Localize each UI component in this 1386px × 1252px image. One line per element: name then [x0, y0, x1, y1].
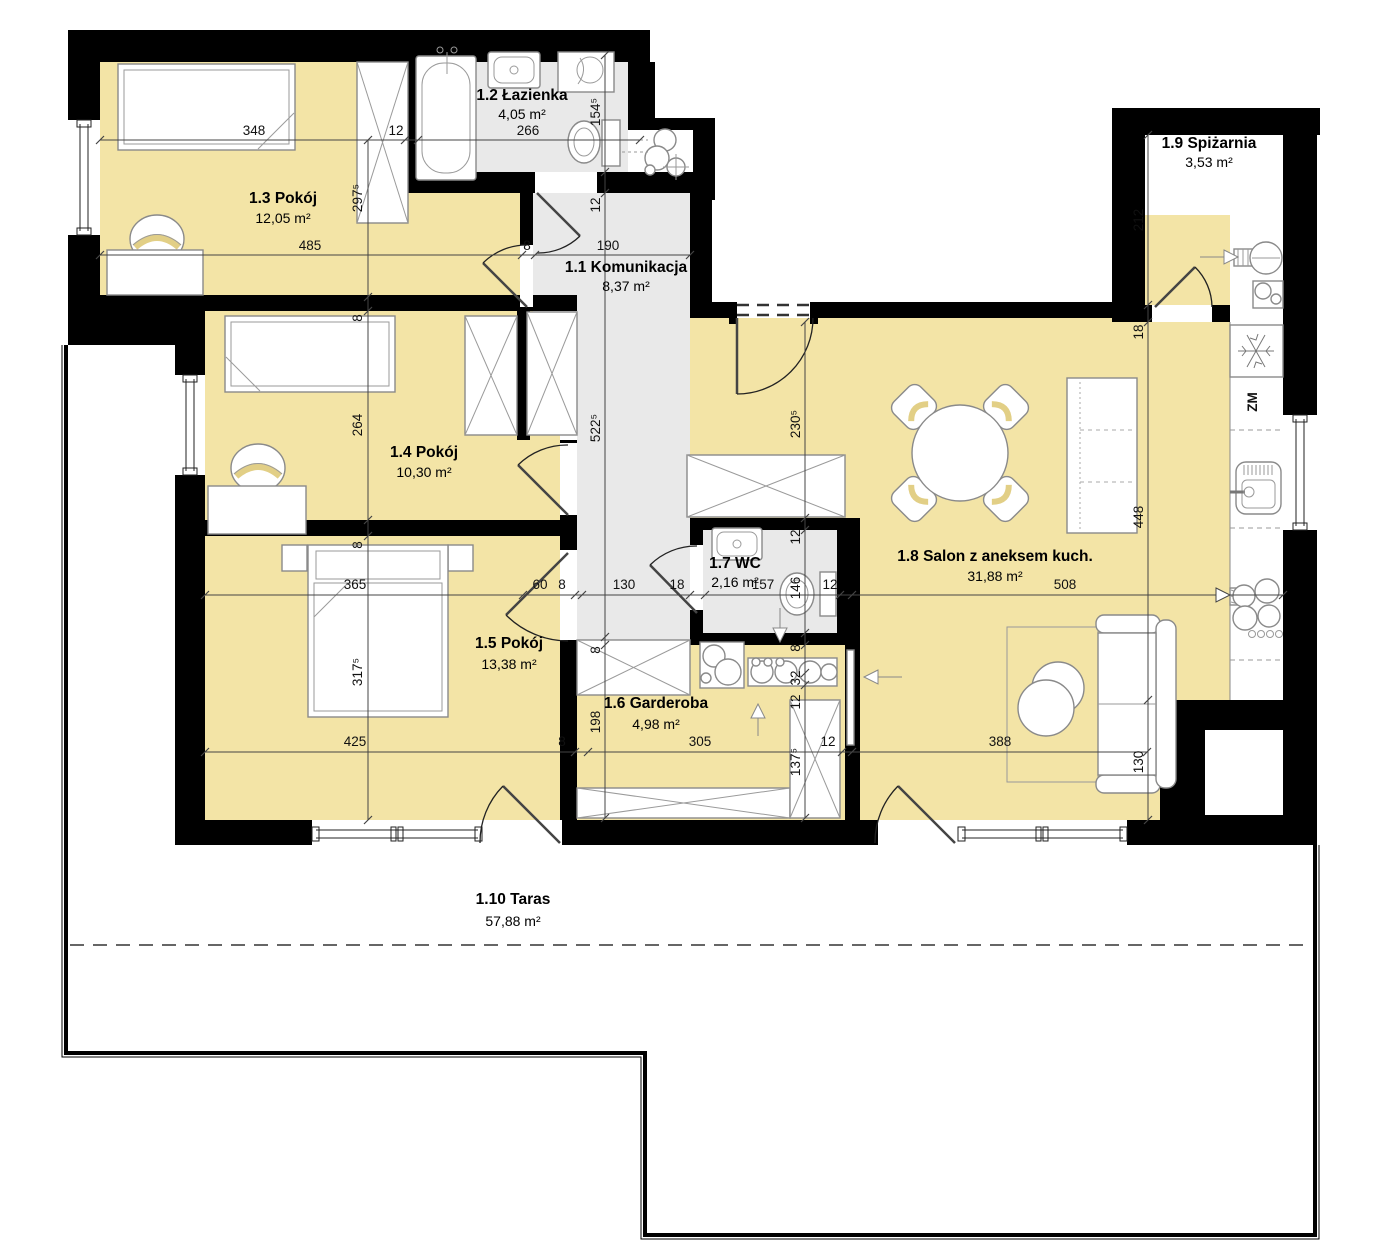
wc-door-opening	[690, 545, 703, 610]
dim-label: 8	[588, 646, 603, 654]
room-label-garderoba: 1.6 Garderoba	[604, 695, 709, 712]
room-area-taras: 57,88 m²	[485, 913, 541, 929]
floor-spizarnia	[1145, 215, 1230, 307]
desk-icon	[208, 486, 306, 534]
dim-label: 485	[299, 238, 322, 253]
bed-icon	[118, 64, 295, 150]
dim-label: 522⁵	[588, 414, 603, 442]
dim-label: 297⁵	[350, 184, 365, 212]
tv-icon	[847, 650, 854, 745]
dim-label: 264	[350, 413, 365, 436]
dim-label: 8	[350, 314, 365, 322]
dim-label: 12	[788, 694, 803, 709]
dim-label: 508	[1054, 577, 1077, 592]
dim-label: 130	[613, 577, 636, 592]
room-area-pokoj-1-4: 10,30 m²	[396, 464, 452, 480]
dim-label: 266	[517, 123, 540, 138]
window-room-1-4	[175, 375, 205, 475]
dim-label: 388	[989, 734, 1012, 749]
window-room-1-3	[68, 120, 100, 235]
dim-label: 12	[588, 197, 603, 212]
dim-label: 305	[689, 734, 712, 749]
room-label-lazienka: 1.2 Łazienka	[476, 87, 568, 104]
dim-label: 32	[788, 670, 803, 685]
room-label-pokoj-1-3: 1.3 Pokój	[249, 190, 317, 207]
room-area-wc: 2,16 m²	[711, 574, 759, 590]
dim-label: 130	[1131, 751, 1146, 774]
room-label-pokoj-1-5: 1.5 Pokój	[475, 635, 543, 652]
dim-label: 190	[597, 238, 620, 253]
room-label-wc: 1.7 WC	[709, 555, 761, 572]
bed-icon	[225, 316, 395, 392]
dim-label: 12	[820, 734, 835, 749]
dim-label: 365	[344, 577, 367, 592]
dim-label: 12	[388, 123, 403, 138]
dim-label: 448	[1131, 506, 1146, 529]
floor-plan-page: ZM	[0, 0, 1386, 1247]
room-area-komunikacja: 8,37 m²	[602, 278, 650, 294]
building-recess	[1205, 730, 1283, 815]
sideboard-icon	[1067, 378, 1137, 533]
bathtub-icon	[416, 47, 476, 180]
dim-label: 317⁵	[350, 658, 365, 686]
room-1-4-door-opening	[560, 443, 577, 515]
dim-label: 198	[588, 711, 603, 734]
room-label-spizarnia: 1.9 Spiżarnia	[1162, 135, 1257, 152]
desk-chair-icon	[231, 444, 285, 492]
dim-label: 212	[1131, 209, 1146, 232]
bathroom-sink-icon	[488, 52, 540, 88]
room-area-lazienka: 4,05 m²	[498, 106, 546, 122]
dim-label: 18	[669, 577, 684, 592]
dim-label: 12	[788, 529, 803, 544]
room-area-pokoj-1-3: 12,05 m²	[255, 210, 311, 226]
kitchen-sink-icon	[1230, 462, 1281, 514]
dim-label: 60	[532, 577, 547, 592]
room-label-salon: 1.8 Salon z aneksem kuch.	[897, 548, 1093, 565]
dim-label: 137⁵	[788, 748, 803, 776]
spizarnia-door-opening	[1152, 305, 1212, 322]
desk-icon	[107, 250, 203, 295]
room-area-garderoba: 4,98 m²	[632, 716, 680, 732]
dim-label: 425	[344, 734, 367, 749]
room-area-pokoj-1-5: 13,38 m²	[481, 656, 537, 672]
installation-shaft-icon	[1253, 281, 1283, 308]
double-bed-icon	[282, 545, 473, 717]
dim-label: 8	[788, 644, 803, 652]
window-kitchen	[1283, 415, 1317, 530]
washing-machine-icon	[558, 52, 614, 92]
dim-label: 348	[243, 123, 266, 138]
dim-label: 12	[822, 577, 837, 592]
room-label-taras: 1.10 Taras	[476, 891, 551, 908]
window-salon	[958, 820, 1127, 845]
dim-label: 8	[523, 238, 531, 253]
room-area-salon: 31,88 m²	[967, 568, 1023, 584]
dim-label: 146	[788, 577, 803, 600]
bathroom-door-opening	[535, 172, 597, 193]
dim-label: 8	[350, 541, 365, 549]
dim-label: 154⁵	[588, 98, 603, 126]
cabinet-icon	[687, 455, 845, 517]
window-room-1-5	[312, 820, 482, 845]
floor-plan: ZM	[0, 0, 1386, 1247]
room-label-komunikacja: 1.1 Komunikacja	[565, 259, 688, 276]
dim-label: 8	[558, 734, 566, 749]
room-area-spizarnia: 3,53 m²	[1185, 154, 1233, 170]
dishwasher-label: ZM	[1245, 392, 1260, 412]
dim-label: 18	[1131, 324, 1146, 339]
dim-label: 230⁵	[788, 410, 803, 438]
room-label-pokoj-1-4: 1.4 Pokój	[390, 444, 458, 461]
dim-label: 8	[558, 577, 566, 592]
